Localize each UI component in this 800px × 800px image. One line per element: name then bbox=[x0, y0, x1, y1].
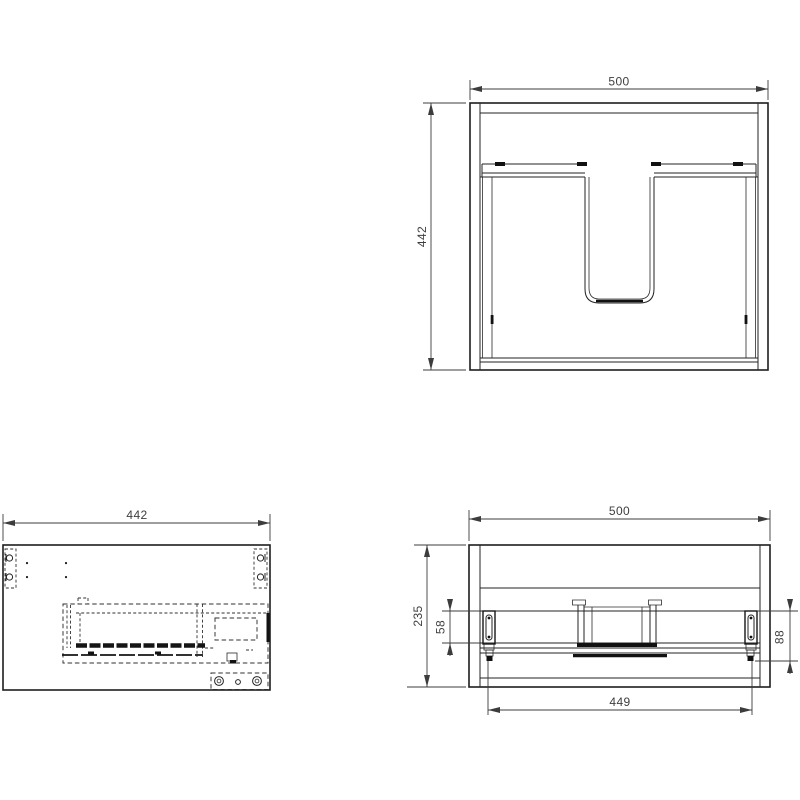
technical-drawing-page: 500 442 442 bbox=[0, 0, 800, 800]
plan-view: 500 442 bbox=[415, 75, 768, 371]
dim-front-height-label: 235 bbox=[411, 605, 425, 626]
slide-rail-front bbox=[573, 654, 667, 657]
dim-plan-width-label: 500 bbox=[608, 75, 629, 89]
dim-plan-depth-label: 442 bbox=[415, 226, 429, 247]
side-cabinet-outline bbox=[3, 545, 270, 690]
technical-drawing-canvas: 500 442 442 bbox=[0, 0, 800, 800]
side-view: 442 bbox=[3, 508, 270, 690]
hanging-bracket-hidden-left bbox=[5, 549, 16, 588]
dim-bracket-offset: 88 bbox=[755, 600, 798, 674]
hanging-bracket-hidden-right bbox=[254, 549, 267, 588]
front-view: 500 235 58 88 449 bbox=[407, 504, 798, 715]
dim-plan-width: 500 bbox=[470, 75, 768, 101]
dim-side-depth: 442 bbox=[3, 508, 270, 541]
dim-mount-span: 449 bbox=[488, 661, 752, 715]
u-shaped-cutout bbox=[585, 177, 654, 303]
dim-plan-depth: 442 bbox=[415, 103, 466, 370]
dim-front-height: 235 bbox=[407, 545, 466, 687]
plan-cabinet-outline bbox=[470, 103, 768, 370]
drain-recess bbox=[573, 600, 662, 647]
front-cabinet-outline bbox=[469, 545, 770, 687]
dim-side-depth-label: 442 bbox=[126, 508, 147, 522]
dim-mount-span-label: 449 bbox=[609, 695, 630, 709]
dim-bracket-height: 58 bbox=[434, 600, 481, 656]
dim-bracket-offset-label: 88 bbox=[773, 630, 787, 644]
slide-fitting-hidden bbox=[211, 673, 268, 690]
dim-front-width: 500 bbox=[469, 504, 770, 541]
dim-bracket-height-label: 58 bbox=[434, 620, 448, 634]
screw-hole-dots bbox=[26, 562, 67, 578]
drawer-hidden-lines bbox=[62, 598, 268, 664]
dim-front-width-label: 500 bbox=[609, 504, 630, 518]
rail-clip-marks bbox=[491, 162, 748, 324]
